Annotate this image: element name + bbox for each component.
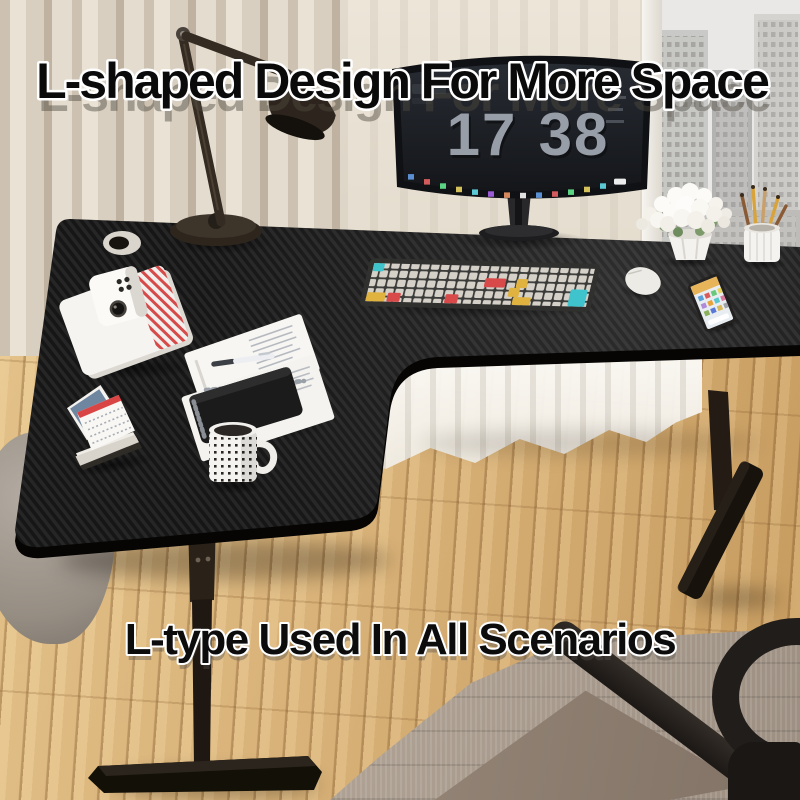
screen-clock-hours: 17	[447, 101, 518, 168]
desk-scene: 17 17 38 38	[0, 0, 800, 800]
white-flowers	[636, 183, 732, 237]
mechanical-keyboard	[359, 258, 615, 319]
screen-date-widget	[412, 98, 432, 104]
curved-monitor: 17 17 38 38	[392, 56, 652, 250]
grommet-hole	[103, 231, 141, 255]
desk-leg-right	[676, 390, 765, 601]
screen-clock-minutes: 38	[539, 101, 610, 168]
desk-leg-left	[88, 517, 322, 793]
screen-side-widget	[604, 96, 626, 99]
desk-lamp	[168, 27, 342, 254]
product-photo: 17 17 38 38	[0, 0, 800, 800]
screen-date-widget	[412, 84, 446, 94]
